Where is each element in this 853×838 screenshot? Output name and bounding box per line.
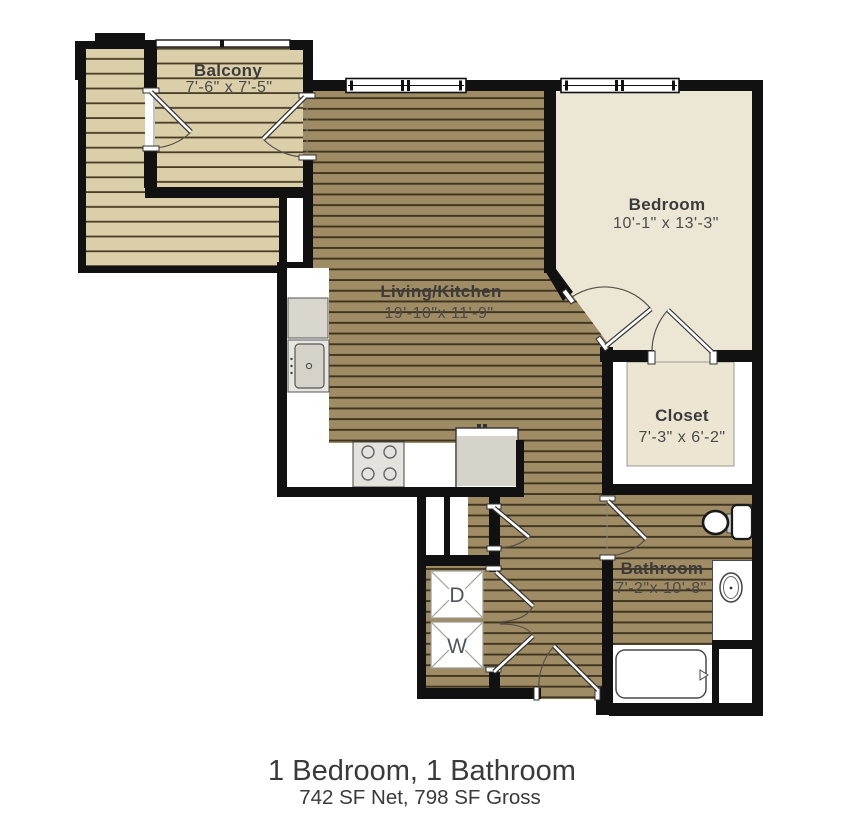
svg-text:7'-6" x 7'-5": 7'-6" x 7'-5": [185, 79, 272, 96]
svg-text:1 Bedroom, 1 Bathroom: 1 Bedroom, 1 Bathroom: [268, 755, 576, 787]
svg-text:W: W: [447, 635, 467, 658]
svg-text:10'-1" x 13'-3": 10'-1" x 13'-3": [613, 215, 719, 232]
svg-text:Closet: Closet: [655, 406, 709, 425]
svg-text:Bedroom: Bedroom: [629, 195, 706, 214]
svg-text:19'-10"x 11'-9": 19'-10"x 11'-9": [384, 305, 493, 322]
svg-text:D: D: [449, 584, 464, 607]
svg-text:Living/Kitchen: Living/Kitchen: [380, 282, 501, 301]
svg-text:Balcony: Balcony: [194, 61, 262, 80]
svg-text:742 SF Net, 798 SF Gross: 742 SF Net, 798 SF Gross: [299, 786, 541, 809]
svg-text:Bathroom: Bathroom: [621, 559, 704, 578]
svg-text:7'-2"x 10'-8": 7'-2"x 10'-8": [615, 580, 707, 597]
svg-text:7'-3" x 6'-2": 7'-3" x 6'-2": [638, 429, 725, 446]
